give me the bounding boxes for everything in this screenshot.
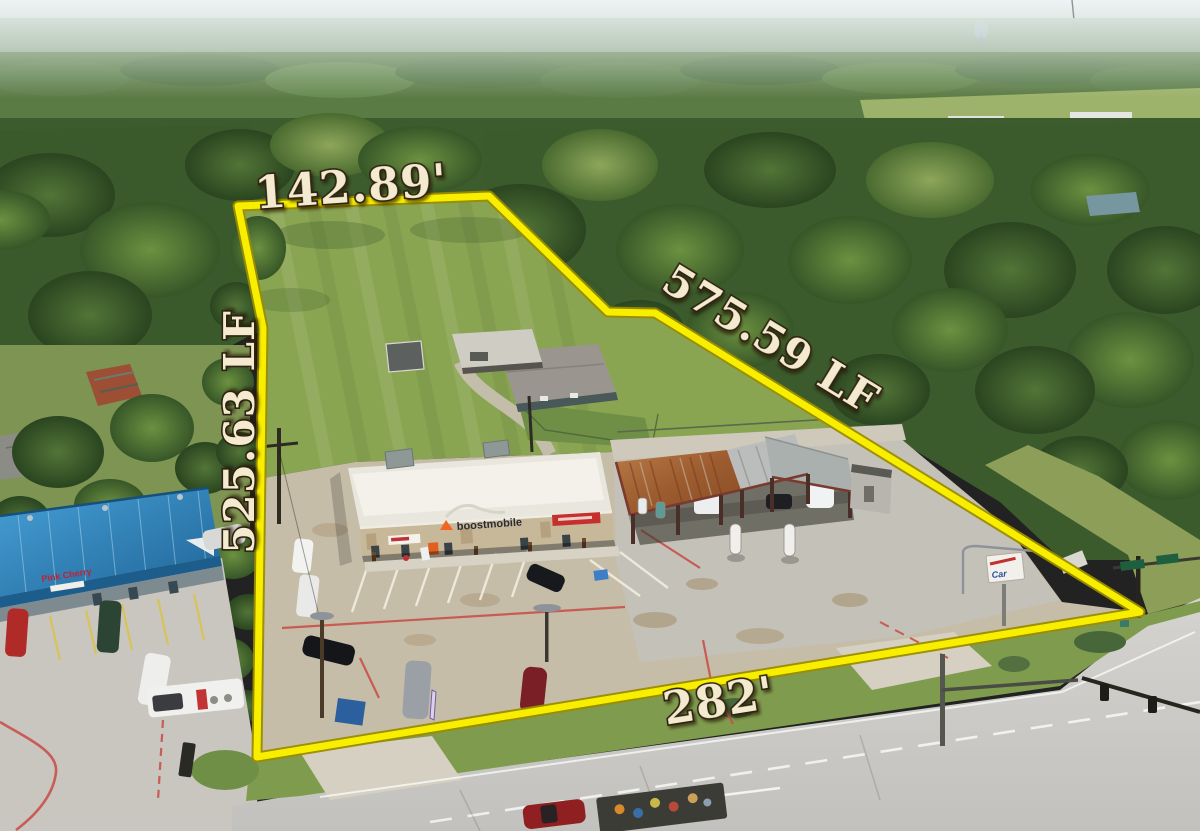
equipment-shed bbox=[850, 464, 892, 514]
carwash-sign-text: Car bbox=[991, 568, 1007, 580]
handicap-marking bbox=[593, 569, 608, 581]
haze-overlay bbox=[0, 18, 1200, 98]
label-left-side: 525.63 LF bbox=[215, 310, 264, 554]
white-suv bbox=[291, 538, 313, 574]
green-suv bbox=[96, 600, 122, 653]
blue-dumpster bbox=[335, 698, 366, 726]
small-shed bbox=[386, 341, 424, 372]
aerial-photo: Pink Cherry boostmobile bbox=[0, 0, 1200, 831]
red-truck-stripmall bbox=[5, 608, 29, 657]
teal-roof-house-distant bbox=[1086, 192, 1140, 216]
carport bbox=[452, 329, 543, 374]
aerial-photo-canvas: Pink Cherry boostmobile bbox=[0, 0, 1200, 831]
person bbox=[403, 555, 409, 561]
